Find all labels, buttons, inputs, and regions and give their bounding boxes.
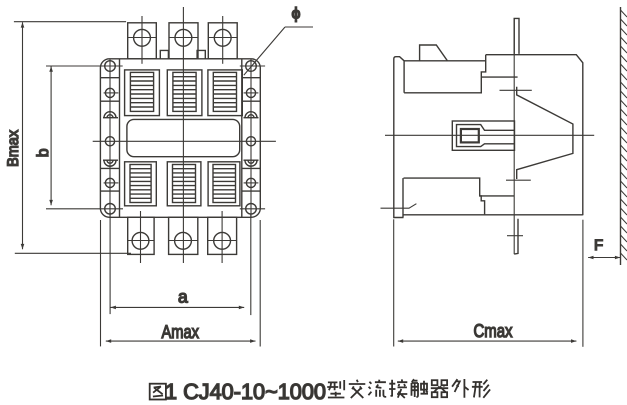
svg-text:ϕ: ϕ [292,6,301,23]
svg-text:b: b [35,148,52,157]
svg-text:a: a [178,287,188,307]
svg-text:Cmax: Cmax [474,320,514,341]
svg-text:1 CJ40-10~1000: 1 CJ40-10~1000 [165,379,326,404]
svg-text:F: F [594,237,603,254]
svg-text:Amax: Amax [162,321,200,342]
svg-text:Bmax: Bmax [5,130,22,167]
